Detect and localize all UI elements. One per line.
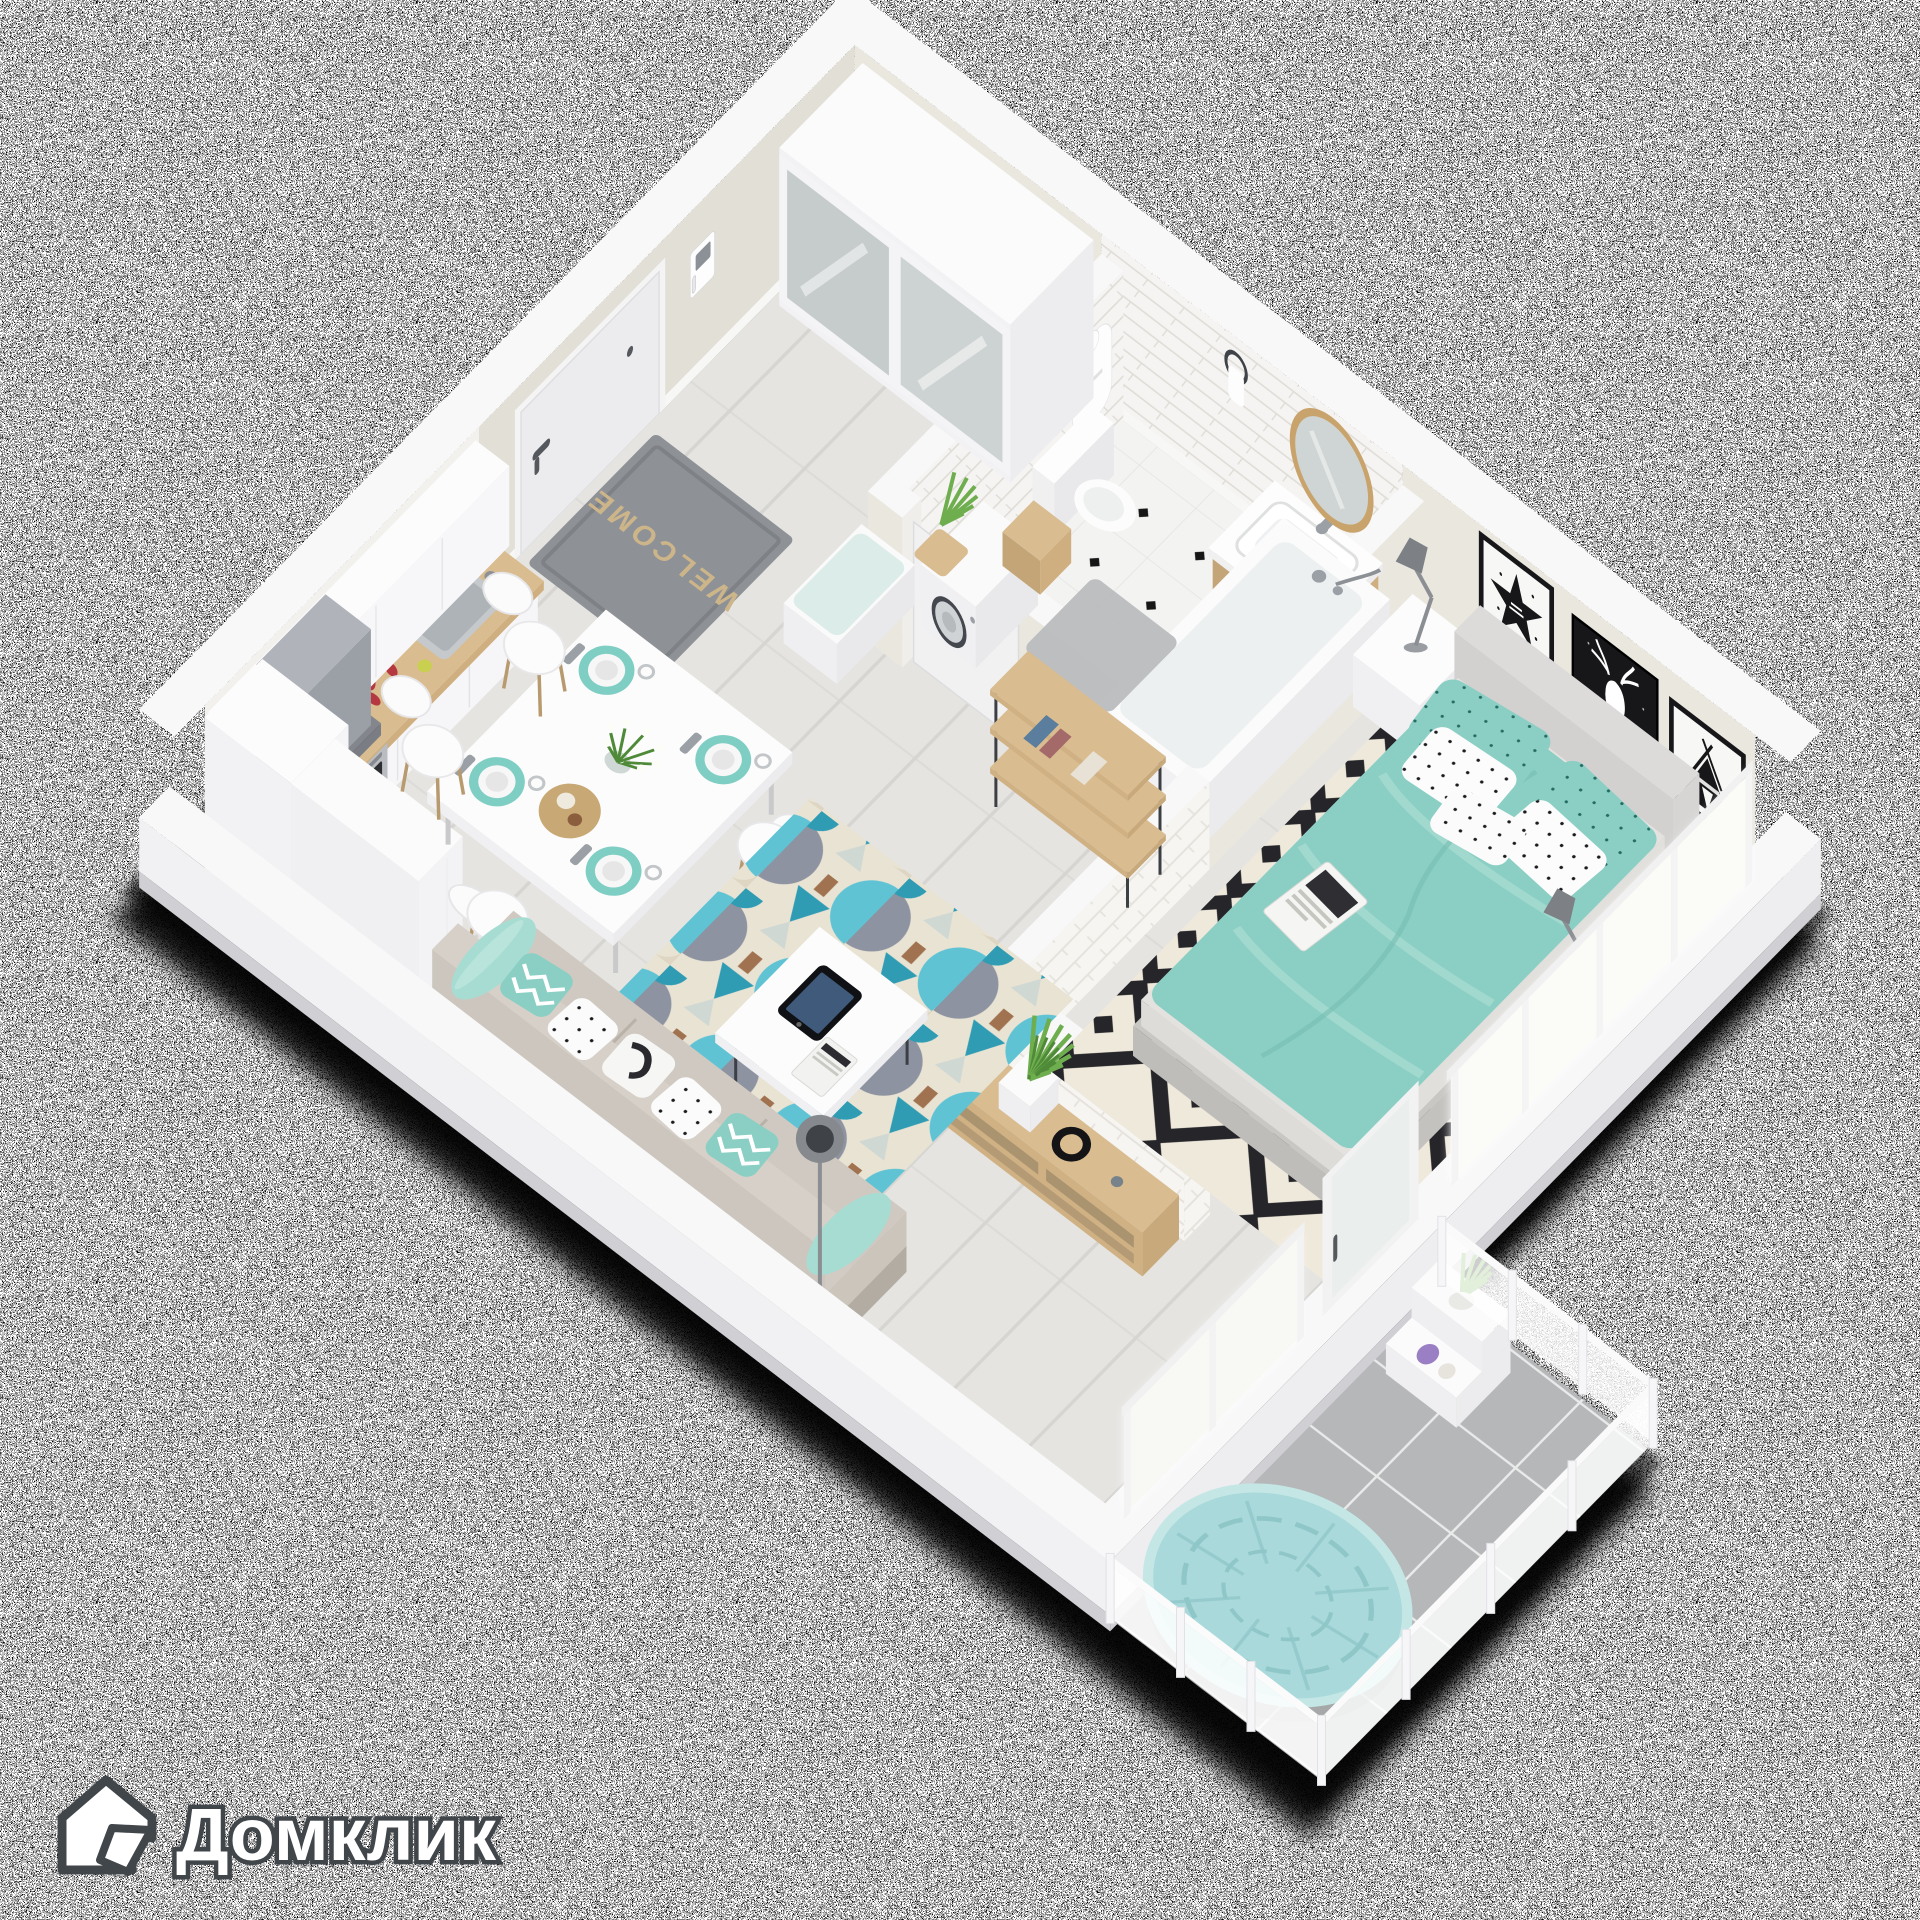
domklik-watermark: Домклик — [54, 1772, 554, 1888]
apartment-3d-render: WELCOME — [0, 0, 1920, 1920]
domklik-logo-text: Домклик — [176, 1793, 497, 1876]
domklik-logo-icon — [62, 1780, 152, 1872]
floorplan-image: WELCOME Домклик — [0, 0, 1920, 1920]
